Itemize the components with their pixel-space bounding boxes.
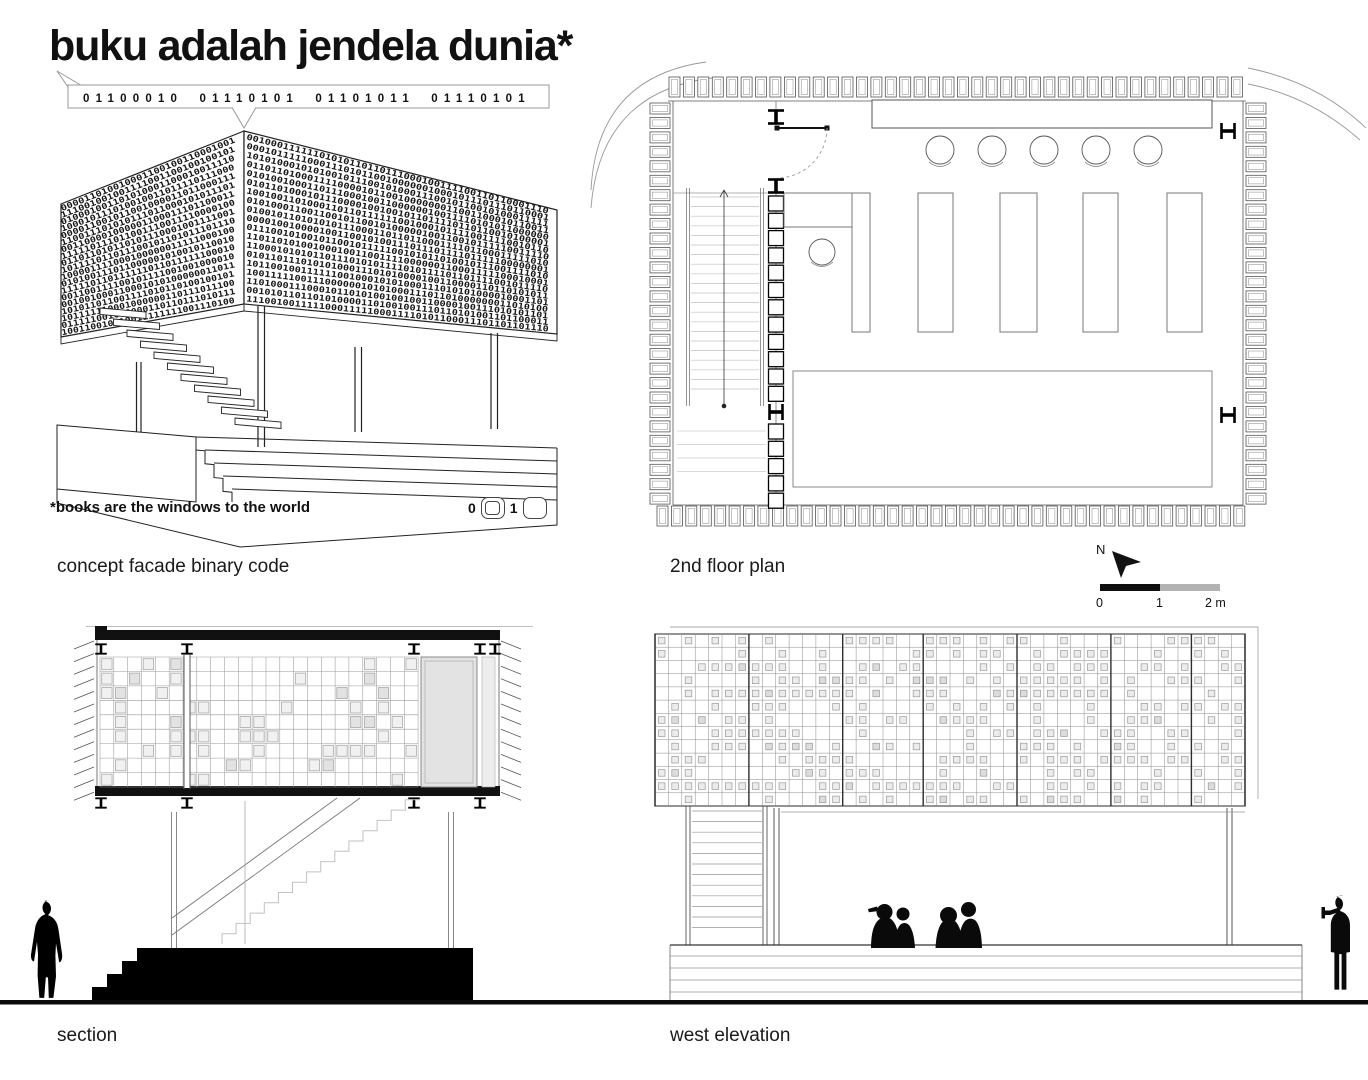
facade-hole-block (1128, 717, 1135, 724)
wall-block (1087, 77, 1098, 97)
wall-block (830, 506, 841, 526)
wall-block (902, 506, 913, 526)
wall-block (1246, 262, 1266, 273)
facade-hole-block (1181, 704, 1188, 711)
wall-block (974, 506, 985, 526)
facade-hole-block (860, 677, 867, 684)
stair-steps-profile (222, 800, 419, 944)
book-box (143, 745, 153, 756)
facade-hole-block (1020, 637, 1027, 644)
facade-hole-block (766, 664, 773, 671)
facade-hole-block (1195, 704, 1202, 711)
facade-hole-block (1181, 756, 1188, 763)
elevation-panel (655, 627, 1350, 1000)
facade-hole-block (860, 770, 867, 777)
facade-hole-block (1168, 743, 1175, 750)
steel-column-symbol (768, 111, 784, 124)
ground-line (0, 1000, 1368, 1005)
book-box (199, 745, 209, 756)
wall-block (650, 406, 670, 417)
one-block-icon (523, 497, 547, 519)
facade-hole-block (967, 796, 974, 803)
facade-hole-block (725, 783, 732, 790)
facade-hole-block (779, 651, 786, 658)
wall-block (671, 506, 682, 526)
facade-hole-block (1074, 770, 1081, 777)
facade-hole-block (1074, 756, 1081, 763)
book-box (378, 731, 388, 742)
facade-hole-block (913, 677, 920, 684)
plan-reading-area (793, 371, 1212, 487)
facade-hole-block (1235, 664, 1242, 671)
facade-hole-block (685, 677, 692, 684)
wall-block (945, 506, 956, 526)
facade-hole-block (819, 690, 826, 697)
elevation-columns (774, 808, 1232, 945)
facade-hole-block (1061, 677, 1068, 684)
facade-hole-block (793, 677, 800, 684)
wall-block (986, 77, 997, 97)
shelf-wall-cell (769, 196, 784, 211)
facade-hole-block (712, 690, 719, 697)
facade-hole-block (725, 664, 732, 671)
wall-block (744, 506, 755, 526)
facade-hole-block (994, 651, 1001, 658)
wall-block (1130, 77, 1141, 97)
chair (978, 136, 1006, 164)
hatch-line (501, 666, 521, 674)
facade-hole-block (967, 677, 974, 684)
facade-hole-block (1155, 664, 1162, 671)
facade-hole-block (846, 637, 853, 644)
facade-hole-block (806, 743, 813, 750)
facade-hole-block (833, 756, 840, 763)
facade-hole-block (980, 637, 987, 644)
facade-hole-block (953, 783, 960, 790)
axon-face-left-digits: 0000110100100011001001100010011110010010… (59, 136, 236, 338)
facade-hole-block (1007, 690, 1014, 697)
book-box (240, 717, 250, 728)
book-box (295, 673, 305, 684)
facade-hole-block (1235, 677, 1242, 684)
wall-block (650, 291, 670, 302)
book-box (171, 731, 181, 742)
wall-block (1147, 506, 1158, 526)
facade-hole-block (766, 783, 773, 790)
facade-hole-block (779, 756, 786, 763)
wall-block (1246, 233, 1266, 244)
north-label: N (1096, 542, 1105, 557)
wall-block (650, 392, 670, 403)
wall-block (657, 506, 668, 526)
wall-block (650, 262, 670, 273)
wall-block (888, 506, 899, 526)
facade-hole-block (739, 717, 746, 724)
axon-stair-tread (208, 396, 254, 407)
facade-hole-block (1088, 651, 1095, 658)
chair (1030, 136, 1058, 164)
axon-stair-tread (154, 352, 200, 363)
facade-hole-block (806, 770, 813, 777)
facade-hole-block (712, 783, 719, 790)
binary-legend: 0 1 (468, 497, 547, 519)
hatch-line (74, 717, 94, 725)
book-box (365, 745, 375, 756)
axon-stair-tread (181, 374, 227, 385)
wall-block (650, 190, 670, 201)
hatch-line (74, 641, 94, 649)
scale-tick-1: 1 (1156, 596, 1163, 610)
scale-tick-2: 2 m (1205, 596, 1226, 610)
wall-block (1246, 190, 1266, 201)
book-box (102, 688, 112, 699)
facade-hole-block (940, 796, 947, 803)
shelf-wall-cell (769, 231, 784, 246)
wall-block (1032, 506, 1043, 526)
bookshelf (852, 193, 870, 332)
shelf-wall-cell (769, 317, 784, 332)
wall-block (1246, 132, 1266, 143)
section-stair (172, 798, 419, 944)
facade-hole-block (1181, 730, 1188, 737)
facade-hole-block (1141, 756, 1148, 763)
facade-hole-block (1141, 717, 1148, 724)
facade-hole-block (833, 796, 840, 803)
wall-block (1162, 506, 1173, 526)
facade-hole-block (1074, 651, 1081, 658)
facade-hole-block (725, 743, 732, 750)
facade-hole-block (860, 637, 867, 644)
facade-hole-block (1195, 743, 1202, 750)
wall-block (1174, 77, 1185, 97)
wall-block (650, 276, 670, 287)
facade-hole-block (712, 743, 719, 750)
facade-hole-block (1222, 756, 1229, 763)
legend-zero-label: 0 (468, 500, 476, 516)
facade-hole-block (685, 796, 692, 803)
facade-hole-block (1007, 704, 1014, 711)
facade-hole-block (672, 730, 679, 737)
facade-hole-block (658, 783, 665, 790)
book-box (351, 702, 361, 713)
wall-block (1246, 248, 1266, 259)
shelf-wall-cell (769, 369, 784, 384)
wall-block (1246, 479, 1266, 490)
facade-hole-block (1114, 796, 1121, 803)
facade-hole-block (766, 730, 773, 737)
wall-block (1003, 506, 1014, 526)
facade-hole-block (1101, 651, 1108, 658)
wall-block (1061, 506, 1072, 526)
wall-block (650, 204, 670, 215)
chair (1082, 136, 1110, 164)
wall-block (1246, 161, 1266, 172)
facade-hole-block (1195, 651, 1202, 658)
facade-hole-block (1061, 796, 1068, 803)
facade-hole-block (1061, 730, 1068, 737)
facade-hole-block (1208, 637, 1215, 644)
facade-hole-block (860, 664, 867, 671)
hatch-line (74, 729, 94, 737)
wall-block (1246, 406, 1266, 417)
facade-hole-block (1007, 637, 1014, 644)
facade-hole-block (819, 756, 826, 763)
hatch-line (501, 679, 521, 687)
facade-hole-block (927, 651, 934, 658)
hatch-line (74, 704, 94, 712)
shelf-wall-cell (769, 248, 784, 263)
facade-hole-block (1235, 783, 1242, 790)
book-box (406, 745, 416, 756)
facade-hole-block (1141, 796, 1148, 803)
facade-hole-block (886, 677, 893, 684)
book-box (171, 717, 181, 728)
facade-hole-block (766, 637, 773, 644)
wall-block (756, 77, 767, 97)
facade-hole-block (712, 730, 719, 737)
wall-block (801, 506, 812, 526)
wall-block (650, 219, 670, 230)
wall-block (900, 77, 911, 97)
facade-hole-block (873, 743, 880, 750)
facade-hole-block (886, 783, 893, 790)
shelf-wall-cell (769, 334, 784, 349)
label-elevation: west elevation (670, 1025, 790, 1047)
facade-hole-block (994, 677, 1001, 684)
book-box (378, 702, 388, 713)
book-box (199, 731, 209, 742)
facade-hole-block (1088, 704, 1095, 711)
facade-hole-block (940, 690, 947, 697)
facade-hole-block (953, 651, 960, 658)
facade-hole-block (819, 677, 826, 684)
wall-block (650, 378, 670, 389)
wall-block (1001, 77, 1012, 97)
wall-block (1246, 305, 1266, 316)
hatch-line (74, 767, 94, 775)
legend-one-label: 1 (510, 500, 518, 516)
facade-hole-block (873, 690, 880, 697)
wall-block (650, 450, 670, 461)
wall-block (1133, 506, 1144, 526)
wall-block (650, 363, 670, 374)
book-box (102, 774, 112, 785)
steel-column-symbol (1222, 123, 1235, 139)
book-box (392, 774, 402, 785)
wall-block (914, 77, 925, 97)
book-box (365, 673, 375, 684)
wall-block (929, 77, 940, 97)
wall-block (698, 77, 709, 97)
facade-hole-block (1020, 690, 1027, 697)
hatch-line (501, 767, 521, 775)
book-box (240, 731, 250, 742)
facade-hole-block (1047, 796, 1054, 803)
plan-shelf-wall (769, 196, 784, 508)
facade-hole-block (752, 730, 759, 737)
facade-hole-block (1208, 717, 1215, 724)
scale-bar-gray (1160, 584, 1220, 591)
facade-hole-block (685, 756, 692, 763)
book-box (406, 659, 416, 670)
label-plan: 2nd floor plan (670, 556, 785, 578)
stair-line-dot (722, 404, 727, 409)
facade-hole-block (1034, 690, 1041, 697)
facade-hole-block (940, 756, 947, 763)
facade-hole-block (846, 677, 853, 684)
facade-hole-block (658, 717, 665, 724)
hatch-line (501, 717, 521, 725)
wall-block (1246, 435, 1266, 446)
facade-hole-block (927, 690, 934, 697)
facade-hole-block (1114, 743, 1121, 750)
facade-hole-block (672, 704, 679, 711)
hatch-line (74, 780, 94, 788)
wall-block (960, 506, 971, 526)
facade-hole-block (1047, 783, 1054, 790)
facade-hole-block (953, 637, 960, 644)
facade-hole-block (1155, 651, 1162, 658)
bookshelf (1000, 193, 1037, 332)
facade-hole-block (658, 637, 665, 644)
facade-hole-block (940, 783, 947, 790)
facade-hole-block (819, 664, 826, 671)
facade-hole-block (860, 717, 867, 724)
hatch-line (74, 654, 94, 662)
steel-column-symbol (1222, 407, 1235, 423)
facade-hole-block (685, 770, 692, 777)
wall-block (1116, 77, 1127, 97)
plan-desk (784, 193, 852, 267)
facade-hole-block (980, 770, 987, 777)
wall-block (650, 132, 670, 143)
wall-block (650, 435, 670, 446)
axon-stair-tread (127, 330, 173, 341)
wall-block (1246, 378, 1266, 389)
wall-block (1246, 204, 1266, 215)
facade-hole-block (846, 756, 853, 763)
facade-hole-block (752, 677, 759, 684)
wall-block (1046, 506, 1057, 526)
wall-block (1188, 77, 1199, 97)
wall-block (650, 161, 670, 172)
facade-hole-block (1195, 796, 1202, 803)
facade-hole-block (725, 717, 732, 724)
wall-block (1231, 77, 1242, 97)
wall-block (943, 77, 954, 97)
facade-hole-block (1168, 637, 1175, 644)
book-box (254, 717, 264, 728)
facade-hole-block (1101, 756, 1108, 763)
facade-hole-block (1208, 690, 1215, 697)
bookshelf (1083, 193, 1118, 332)
wall-block (1018, 506, 1029, 526)
facade-hole-block (1168, 677, 1175, 684)
facade-hole-block (833, 690, 840, 697)
facade-hole-block (752, 704, 759, 711)
wall-block (989, 506, 1000, 526)
wall-block (727, 77, 738, 97)
floor-plan-panel (591, 62, 1366, 578)
wall-block (772, 506, 783, 526)
wall-block (1246, 334, 1266, 345)
hatch-line (501, 704, 521, 712)
shelf-wall-cell (769, 213, 784, 228)
facade-hole-block (819, 770, 826, 777)
wall-block (1176, 506, 1187, 526)
bookshelf (918, 193, 953, 332)
facade-hole-block (1155, 770, 1162, 777)
facade-hole-block (846, 783, 853, 790)
facade-hole-block (1141, 664, 1148, 671)
facade-hole-block (1222, 651, 1229, 658)
book-box (171, 659, 181, 670)
facade-hole-block (1101, 690, 1108, 697)
facade-hole-block (779, 664, 786, 671)
facade-hole-block (779, 783, 786, 790)
facade-hole-block (1034, 704, 1041, 711)
facade-hole-block (752, 690, 759, 697)
axon-stair-tread (222, 407, 268, 418)
book-box (143, 659, 153, 670)
facade-hole-block (1195, 637, 1202, 644)
facade-hole-block (1141, 704, 1148, 711)
facade-hole-block (1034, 743, 1041, 750)
facade-hole-block (766, 690, 773, 697)
facade-hole-block (980, 651, 987, 658)
facade-hole-block (1020, 677, 1027, 684)
wall-block (1246, 291, 1266, 302)
section-roof-slab (95, 630, 500, 640)
facade-hole-block (886, 743, 893, 750)
axon-stair-tread (235, 418, 281, 429)
book-box (323, 760, 333, 771)
facade-hole-block (1235, 704, 1242, 711)
section-plinth (92, 948, 473, 1000)
facade-hole-block (685, 690, 692, 697)
wall-block (1219, 506, 1230, 526)
axon-face-right-digits: 0010001111110101011011011100010011110011… (246, 133, 551, 334)
hatch-line (501, 729, 521, 737)
facade-hole-block (1074, 664, 1081, 671)
wall-block (729, 506, 740, 526)
wall-block (1246, 146, 1266, 157)
wall-block (1090, 506, 1101, 526)
facade-hole-block (1181, 637, 1188, 644)
book-box (226, 760, 236, 771)
facade-hole-block (1235, 730, 1242, 737)
facade-hole-block (1155, 717, 1162, 724)
facade-hole-block (1074, 743, 1081, 750)
facade-hole-block (1101, 730, 1108, 737)
wall-block (1246, 450, 1266, 461)
wall-block (1073, 77, 1084, 97)
wall-block (650, 421, 670, 432)
wall-block (917, 506, 928, 526)
facade-hole-block (1181, 664, 1188, 671)
shelf-wall-cell (769, 459, 784, 474)
facade-hole-block (793, 743, 800, 750)
wall-block (1058, 77, 1069, 97)
steel-column-symbol (474, 798, 486, 807)
drawing-canvas: 01100010 01110101 01101011 01110101 0000… (0, 0, 1368, 1080)
facade-hole-block (886, 796, 893, 803)
hatch-line (501, 780, 521, 788)
wall-block (650, 146, 670, 157)
wall-block (1118, 506, 1129, 526)
wall-block (845, 506, 856, 526)
facade-hole-block (779, 704, 786, 711)
